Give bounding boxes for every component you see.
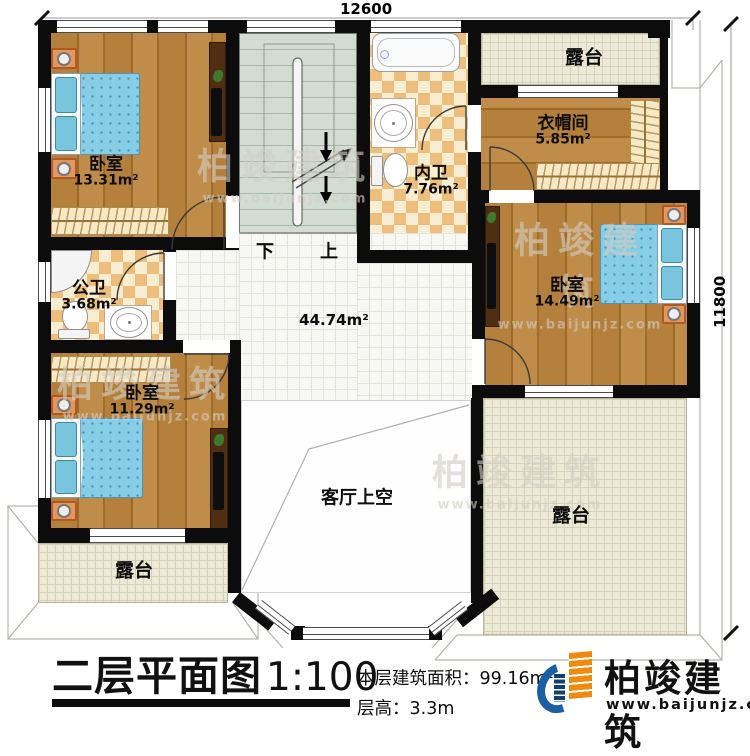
dimension-height: 11800 [711, 294, 729, 328]
room-name: 卧室 [73, 155, 138, 173]
room-name: 公卫 [61, 279, 116, 297]
brand-logo-icon [538, 650, 600, 722]
room-name: 露台 [565, 47, 603, 69]
room-area: 5.85m² [535, 133, 590, 148]
plan-title-text: 二层平面图 [52, 642, 262, 702]
label-living-void: 客厅上空 [321, 488, 393, 507]
floor-area-info: 本层建筑面积：99.16m² [357, 665, 554, 690]
room-area: 7.76m² [403, 183, 458, 198]
room-area: 13.31m² [73, 174, 138, 189]
label-bath-public: 公卫 3.68m² [61, 279, 116, 312]
room-area: 14.49m² [534, 295, 599, 310]
brand-url: www.baijunjz.com [606, 697, 750, 713]
stairs-up-text: 上 [320, 241, 338, 262]
label-terrace-bottomleft: 露台 [115, 561, 153, 582]
label-terrace-bottomright: 露台 [552, 506, 590, 527]
floorplan-page: { "dimensions": { "width": "12600", "hei… [0, 0, 750, 728]
room-area: 44.74m² [299, 311, 369, 329]
title-underline [52, 699, 350, 707]
floor-height-label: 层高： [357, 699, 410, 719]
room-name: 客厅上空 [321, 487, 393, 508]
dimension-height-value: 11800 [711, 276, 729, 328]
floor-height-value: 3.3m [410, 699, 455, 719]
floor-area-label: 本层建筑面积： [357, 669, 480, 689]
room-name: 衣帽间 [535, 114, 590, 132]
label-bath-inner: 内卫 7.76m² [403, 164, 458, 197]
room-name: 卧室 [109, 384, 174, 402]
floor-height-info: 层高：3.3m [357, 695, 454, 720]
room-name: 内卫 [403, 164, 458, 182]
label-hall-area: 44.74m² [299, 312, 369, 328]
room-area: 11.29m² [109, 403, 174, 418]
label-cloakroom: 衣帽间 5.85m² [535, 114, 590, 147]
room-name: 露台 [115, 560, 153, 582]
label-bedroom-bottomleft: 卧室 11.29m² [109, 384, 174, 417]
logo-building-orange [569, 651, 592, 699]
dimension-width: 12600 [340, 0, 392, 18]
label-stairs-down: 下 [256, 242, 274, 261]
door-swing-arcs [0, 0, 750, 728]
label-bedroom-topleft: 卧室 13.31m² [73, 155, 138, 188]
plan-title: 二层平面图 1:100 [52, 642, 378, 702]
label-bedroom-right: 卧室 14.49m² [534, 276, 599, 309]
label-stairs-up: 上 [320, 242, 338, 261]
room-name: 卧室 [534, 276, 599, 294]
dimension-width-value: 12600 [340, 0, 392, 18]
logo-building-blue [554, 674, 565, 702]
label-terrace-top: 露台 [565, 48, 603, 69]
room-area: 3.68m² [61, 298, 116, 313]
stairs-down-text: 下 [256, 241, 274, 262]
room-name: 露台 [552, 505, 590, 527]
